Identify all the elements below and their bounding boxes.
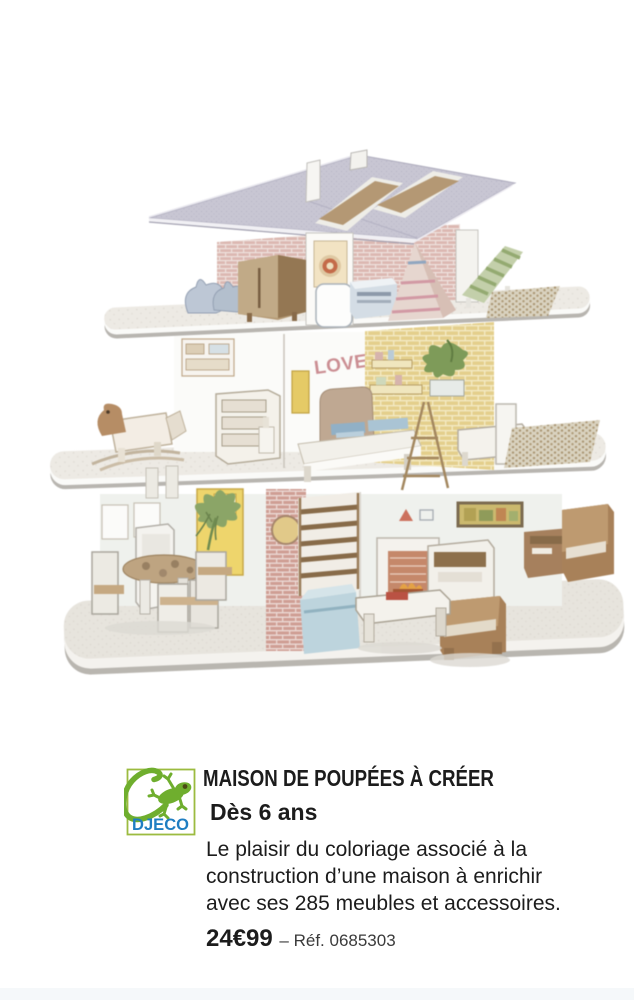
svg-text:DJECO: DJECO (132, 816, 189, 834)
